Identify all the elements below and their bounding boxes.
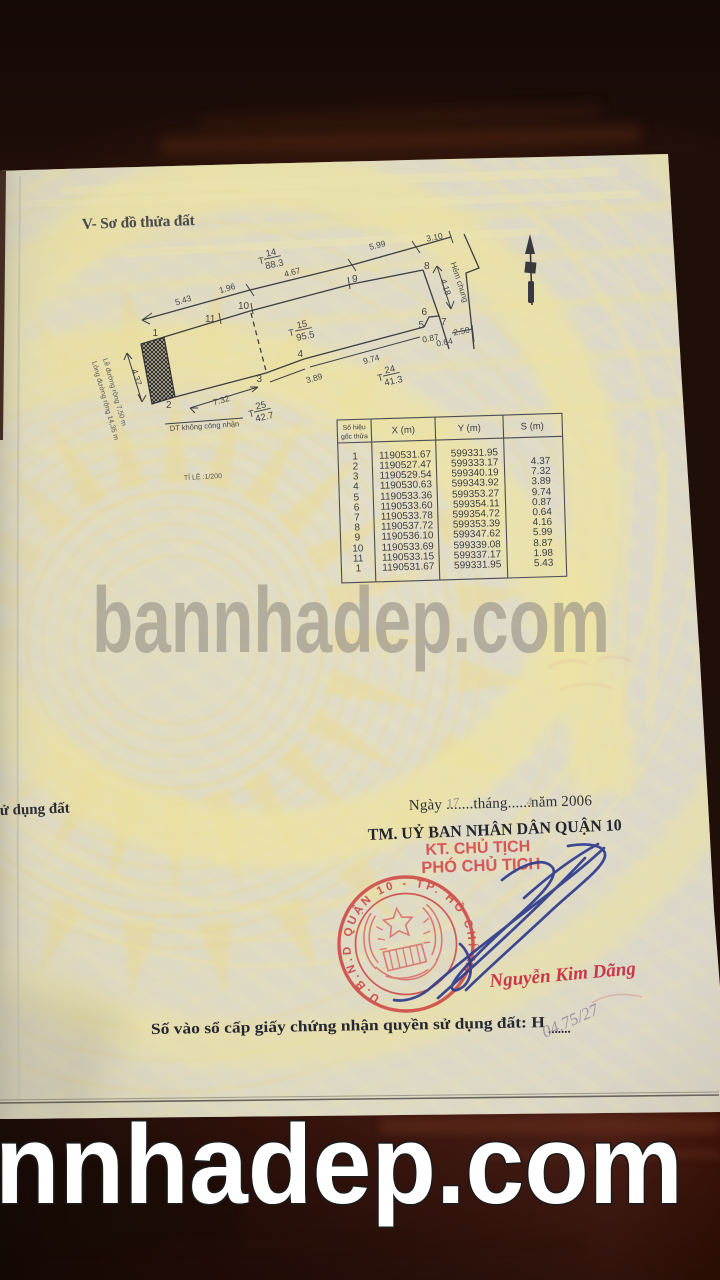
svg-text:9: 9 [355, 532, 361, 543]
svg-text:7: 7 [441, 317, 447, 328]
svg-text:4: 4 [297, 349, 303, 360]
svg-text:2: 2 [166, 400, 172, 411]
svg-text:5: 5 [418, 320, 424, 331]
svg-text:9: 9 [352, 274, 358, 285]
svg-text:nnhadep.com: nnhadep.com [0, 1102, 683, 1227]
svg-text:17: 17 [445, 794, 460, 811]
svg-text:11: 11 [205, 314, 216, 325]
svg-text:5.99: 5.99 [533, 527, 553, 539]
svg-text:8: 8 [424, 261, 430, 272]
svg-text:ử dụng đất: ử dụng đất [0, 801, 70, 819]
svg-text:6: 6 [421, 307, 427, 318]
svg-text:bannhadep.com: bannhadep.com [92, 568, 610, 672]
svg-text:3.89: 3.89 [531, 476, 551, 488]
svg-text:3: 3 [256, 374, 262, 385]
svg-text:1: 1 [152, 328, 158, 339]
svg-text:S (m): S (m) [521, 421, 545, 433]
svg-text:4: 4 [353, 481, 359, 492]
svg-text:X (m): X (m) [392, 425, 416, 437]
svg-text:Y (m): Y (m) [458, 423, 481, 435]
svg-text:10: 10 [238, 301, 250, 312]
